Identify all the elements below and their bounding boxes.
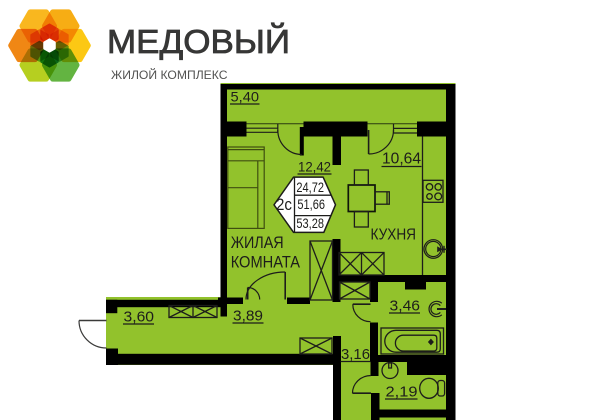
svg-text:МЕДОВЫЙ: МЕДОВЫЙ — [107, 23, 290, 61]
svg-text:3,60: 3,60 — [124, 309, 155, 326]
svg-text:51,66: 51,66 — [297, 196, 325, 212]
svg-text:5,40: 5,40 — [231, 89, 260, 105]
svg-text:3,89: 3,89 — [233, 308, 263, 325]
svg-text:53,28: 53,28 — [296, 215, 324, 231]
svg-text:КУХНЯ: КУХНЯ — [371, 227, 417, 244]
svg-text:3,46: 3,46 — [390, 298, 421, 315]
svg-text:24,72: 24,72 — [296, 179, 324, 195]
svg-text:2,19: 2,19 — [386, 384, 418, 401]
svg-text:ЖИЛАЯ: ЖИЛАЯ — [231, 234, 284, 252]
svg-text:3,16: 3,16 — [341, 346, 370, 363]
svg-text:10,64: 10,64 — [382, 151, 421, 168]
svg-text:2с: 2с — [276, 195, 292, 214]
svg-text:12,42: 12,42 — [298, 159, 331, 175]
svg-text:ЖИЛОЙ КОМПЛЕКС: ЖИЛОЙ КОМПЛЕКС — [111, 68, 228, 82]
svg-text:КОМНАТА: КОМНАТА — [231, 254, 300, 272]
